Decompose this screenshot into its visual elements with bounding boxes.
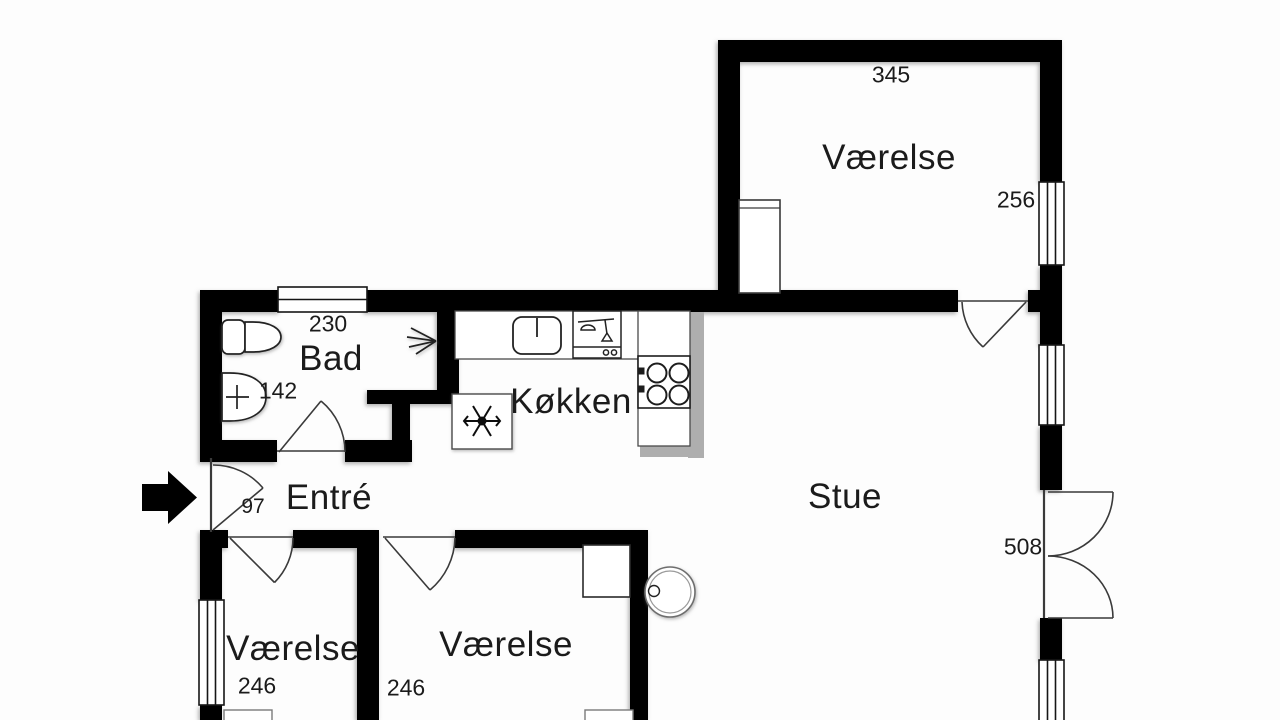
entrance-arrow-icon <box>142 471 197 524</box>
dim-vaerelse-sw: 246 <box>238 673 276 700</box>
wall <box>392 404 410 440</box>
wall <box>630 530 648 720</box>
wall <box>1040 40 1062 182</box>
door-vaerelse-s <box>383 537 455 590</box>
wall <box>200 530 228 548</box>
fridge-icon <box>452 394 512 449</box>
wall <box>357 530 379 720</box>
radiator-s <box>585 710 633 720</box>
window-stue-upper <box>1039 345 1064 425</box>
dishwasher-icon <box>573 311 621 358</box>
door-vaerelse-sw <box>228 537 293 583</box>
wall <box>1040 618 1062 660</box>
dim-entrance-door: 97 <box>241 495 264 519</box>
window-sw <box>199 600 224 705</box>
round-table-icon <box>645 567 695 617</box>
dim-bad-depth: 142 <box>259 378 297 405</box>
wall <box>200 705 222 720</box>
door-bad <box>277 401 345 452</box>
window-ne <box>1039 182 1064 265</box>
dim-vaerelse-ne-width: 345 <box>872 62 910 89</box>
stove-icon <box>638 356 690 408</box>
wardrobe-s <box>583 545 630 597</box>
french-doors-stue <box>1044 490 1113 618</box>
wardrobe-ne <box>739 200 780 293</box>
room-label-bad: Bad <box>299 339 363 379</box>
wall <box>718 40 740 312</box>
room-label-vaerelse-sw: Værelse <box>226 629 360 669</box>
floor-plan-canvas <box>0 0 1280 720</box>
dim-bad-width: 230 <box>309 311 347 338</box>
wall <box>1040 425 1062 490</box>
window-stue-lower <box>1039 660 1064 720</box>
room-label-entre: Entré <box>286 478 372 518</box>
dim-stue-doors: 508 <box>1004 534 1042 561</box>
wall <box>365 290 958 312</box>
wall <box>1040 265 1062 345</box>
room-label-koekken: Køkken <box>510 382 632 422</box>
kitchen-sink-icon <box>513 317 561 354</box>
radiator-sw <box>224 710 272 720</box>
dim-vaerelse-s: 246 <box>387 675 425 702</box>
floor-plan: Værelse 345 256 Bad 230 142 Køkken Entré… <box>0 0 1280 720</box>
room-label-vaerelse-s: Værelse <box>439 625 573 665</box>
wall <box>200 290 222 458</box>
wall <box>345 440 412 462</box>
door-vaerelse-ne <box>958 301 1028 347</box>
shower-spray-icon <box>407 328 436 354</box>
room-label-vaerelse-ne: Værelse <box>822 138 956 178</box>
window-bad <box>278 287 367 312</box>
room-label-stue: Stue <box>808 477 882 517</box>
wall <box>367 390 459 404</box>
wall <box>718 40 1062 62</box>
toilet-icon <box>222 320 281 354</box>
dim-vaerelse-ne-depth: 256 <box>997 187 1035 214</box>
